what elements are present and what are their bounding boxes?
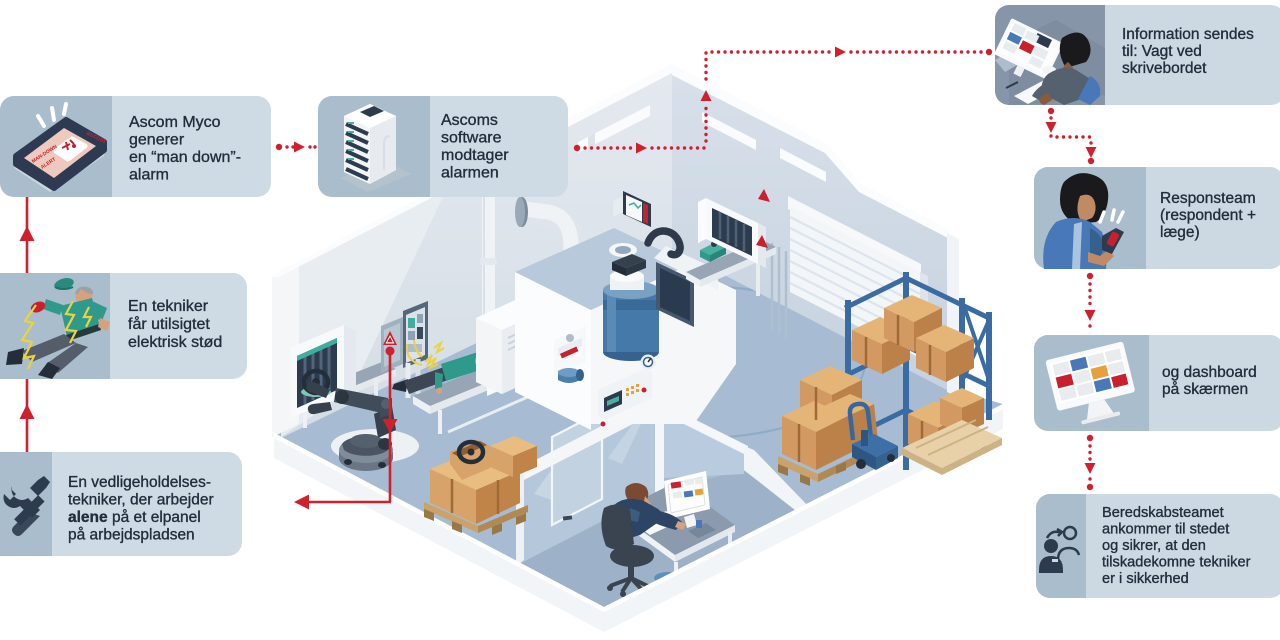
svg-text:Responsteam: Responsteam: [1160, 190, 1256, 207]
svg-text:og sikrer, at den: og sikrer, at den: [1102, 538, 1206, 554]
svg-text:er i sikkerhed: er i sikkerhed: [1102, 571, 1189, 587]
svg-text:alarmen: alarmen: [441, 165, 499, 182]
svg-text:skrivebordet: skrivebordet: [1122, 60, 1207, 77]
svg-text:(respondent +: (respondent +: [1160, 207, 1256, 224]
svg-text:alene på et elpanel: alene på et elpanel: [68, 509, 201, 526]
svg-text:generer: generer: [129, 132, 185, 149]
svg-text:Ascom Myco: Ascom Myco: [129, 114, 221, 131]
svg-text:modtager: modtager: [441, 147, 509, 164]
svg-text:elektrisk stød: elektrisk stød: [128, 334, 222, 351]
svg-text:på skærmen: på skærmen: [1162, 381, 1248, 398]
svg-text:ankommer til stedet: ankommer til stedet: [1102, 522, 1229, 538]
svg-text:til: Vagt ved: til: Vagt ved: [1122, 43, 1202, 60]
svg-text:En vedligeholdelses-: En vedligeholdelses-: [68, 474, 211, 491]
svg-text:tilskadekomne tekniker: tilskadekomne tekniker: [1102, 555, 1251, 571]
svg-text:En tekniker: En tekniker: [128, 298, 209, 315]
svg-text:en “man down”-: en “man down”-: [129, 149, 241, 166]
svg-text:Beredskabsteamet: Beredskabsteamet: [1102, 505, 1224, 521]
svg-text:læge): læge): [1160, 224, 1200, 241]
svg-text:Ascoms: Ascoms: [441, 112, 498, 129]
svg-text:tekniker, der arbejder: tekniker, der arbejder: [68, 492, 214, 509]
svg-text:alarm: alarm: [129, 167, 169, 184]
svg-text:og dashboard: og dashboard: [1162, 364, 1257, 381]
svg-text:på arbejdspladsen: på arbejdspladsen: [68, 527, 195, 544]
svg-text:software: software: [441, 130, 502, 147]
svg-text:Information sendes: Information sendes: [1122, 26, 1254, 43]
svg-text:får utilsigtet: får utilsigtet: [128, 315, 210, 333]
